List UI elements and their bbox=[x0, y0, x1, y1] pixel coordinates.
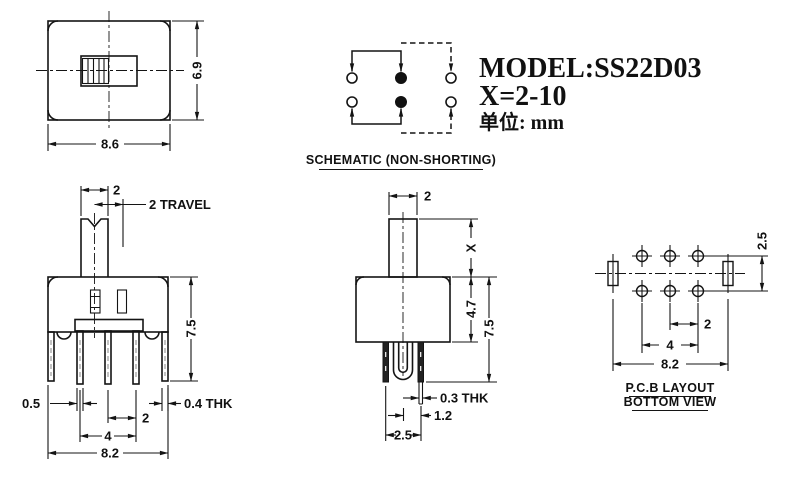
solid-connection-top bbox=[352, 51, 401, 72]
window-detail-lines bbox=[91, 297, 101, 308]
terminal-common bbox=[396, 97, 407, 108]
top-view: 6.9 8.6 bbox=[36, 11, 205, 152]
extension-lines bbox=[108, 390, 136, 442]
dim-top-width: 8.6 bbox=[101, 137, 119, 152]
bottom-rivet-bumps bbox=[57, 332, 159, 339]
drawing-canvas: 6.9 8.6 SCHEMATIC (NON-SHORTING) MODEL:S… bbox=[0, 0, 800, 480]
side-view: 2 X 4.7 7.5 0.3 THK 1.2 2.5 bbox=[356, 189, 497, 443]
pcb-title-line1: P.C.B LAYOUT bbox=[625, 381, 714, 395]
terminal-open bbox=[446, 97, 456, 107]
dim-side-knob-width: 2 bbox=[424, 189, 431, 204]
schematic-title: SCHEMATIC (NON-SHORTING) bbox=[306, 153, 496, 167]
corner-post-marks bbox=[48, 277, 168, 287]
dim-front-travel: 2 TRAVEL bbox=[149, 197, 211, 212]
side-pin-right bbox=[418, 342, 424, 382]
model-number: MODEL:SS22D03 bbox=[479, 53, 701, 84]
dim-front-base-width: 8.2 bbox=[101, 446, 119, 461]
body-window-right bbox=[118, 290, 127, 313]
dim-side-terminal-pitch: 2.5 bbox=[394, 428, 412, 443]
schematic-diagram: SCHEMATIC (NON-SHORTING) bbox=[306, 43, 496, 170]
dim-top-height: 6.9 bbox=[190, 61, 205, 79]
side-pin-left bbox=[383, 342, 389, 382]
pin-tail bbox=[419, 382, 423, 404]
terminal-open bbox=[347, 73, 357, 83]
terminal-open bbox=[347, 97, 357, 107]
terminal-common bbox=[396, 73, 407, 84]
dim-side-terminal-thickness: 0.3 THK bbox=[440, 391, 489, 406]
unit-label: 单位: mm bbox=[479, 110, 564, 134]
dim-front-terminal-pitch: 2 bbox=[142, 411, 149, 426]
dim-side-body-height: 4.7 bbox=[464, 300, 479, 318]
solid-connection-bottom bbox=[352, 109, 401, 125]
dim-side-terminal-offset: 1.2 bbox=[434, 408, 452, 423]
base-band bbox=[75, 320, 143, 332]
slider-actuator bbox=[83, 59, 109, 84]
terminal-open bbox=[446, 73, 456, 83]
dim-pcb-row-pitch: 2.5 bbox=[755, 232, 770, 250]
dim-pcb-overall-span: 8.2 bbox=[661, 357, 679, 372]
front-body-outline bbox=[48, 277, 168, 332]
dim-front-bracket-thickness: 0.4 THK bbox=[184, 396, 233, 411]
pcb-title-line2: BOTTOM VIEW bbox=[624, 395, 717, 409]
dim-pcb-hole-pitch: 2 bbox=[704, 317, 711, 332]
pcb-layout-view: 2.5 2 4 8.2 P.C.B LAYOUT BOTTOM VIEW bbox=[595, 232, 770, 411]
dim-side-knob-height: X bbox=[464, 243, 479, 252]
dim-pcb-hole-span: 4 bbox=[666, 338, 674, 353]
body-window-left bbox=[91, 290, 101, 313]
dim-front-knob-width: 2 bbox=[113, 183, 120, 198]
dim-front-total-height: 7.5 bbox=[184, 319, 199, 337]
extension-lines bbox=[162, 388, 168, 411]
dim-front-terminal-span: 4 bbox=[104, 429, 112, 444]
dashed-connection-bottom bbox=[401, 109, 451, 134]
x-range: X=2-10 bbox=[479, 81, 567, 112]
front-view: 2 2 TRAVEL 7.5 0.5 0.4 THK 2 4 8.2 bbox=[22, 183, 233, 461]
title-block: MODEL:SS22D03 X=2-10 单位: mm bbox=[479, 53, 701, 134]
pin-centerlines bbox=[51, 340, 165, 380]
dim-side-total-height: 7.5 bbox=[482, 319, 497, 337]
extension-lines bbox=[419, 219, 497, 277]
actuator-serrations bbox=[88, 59, 104, 84]
technical-drawing-page: 6.9 8.6 SCHEMATIC (NON-SHORTING) MODEL:S… bbox=[0, 0, 800, 480]
dashed-connection-top bbox=[401, 43, 451, 72]
dim-front-terminal-width: 0.5 bbox=[22, 396, 40, 411]
